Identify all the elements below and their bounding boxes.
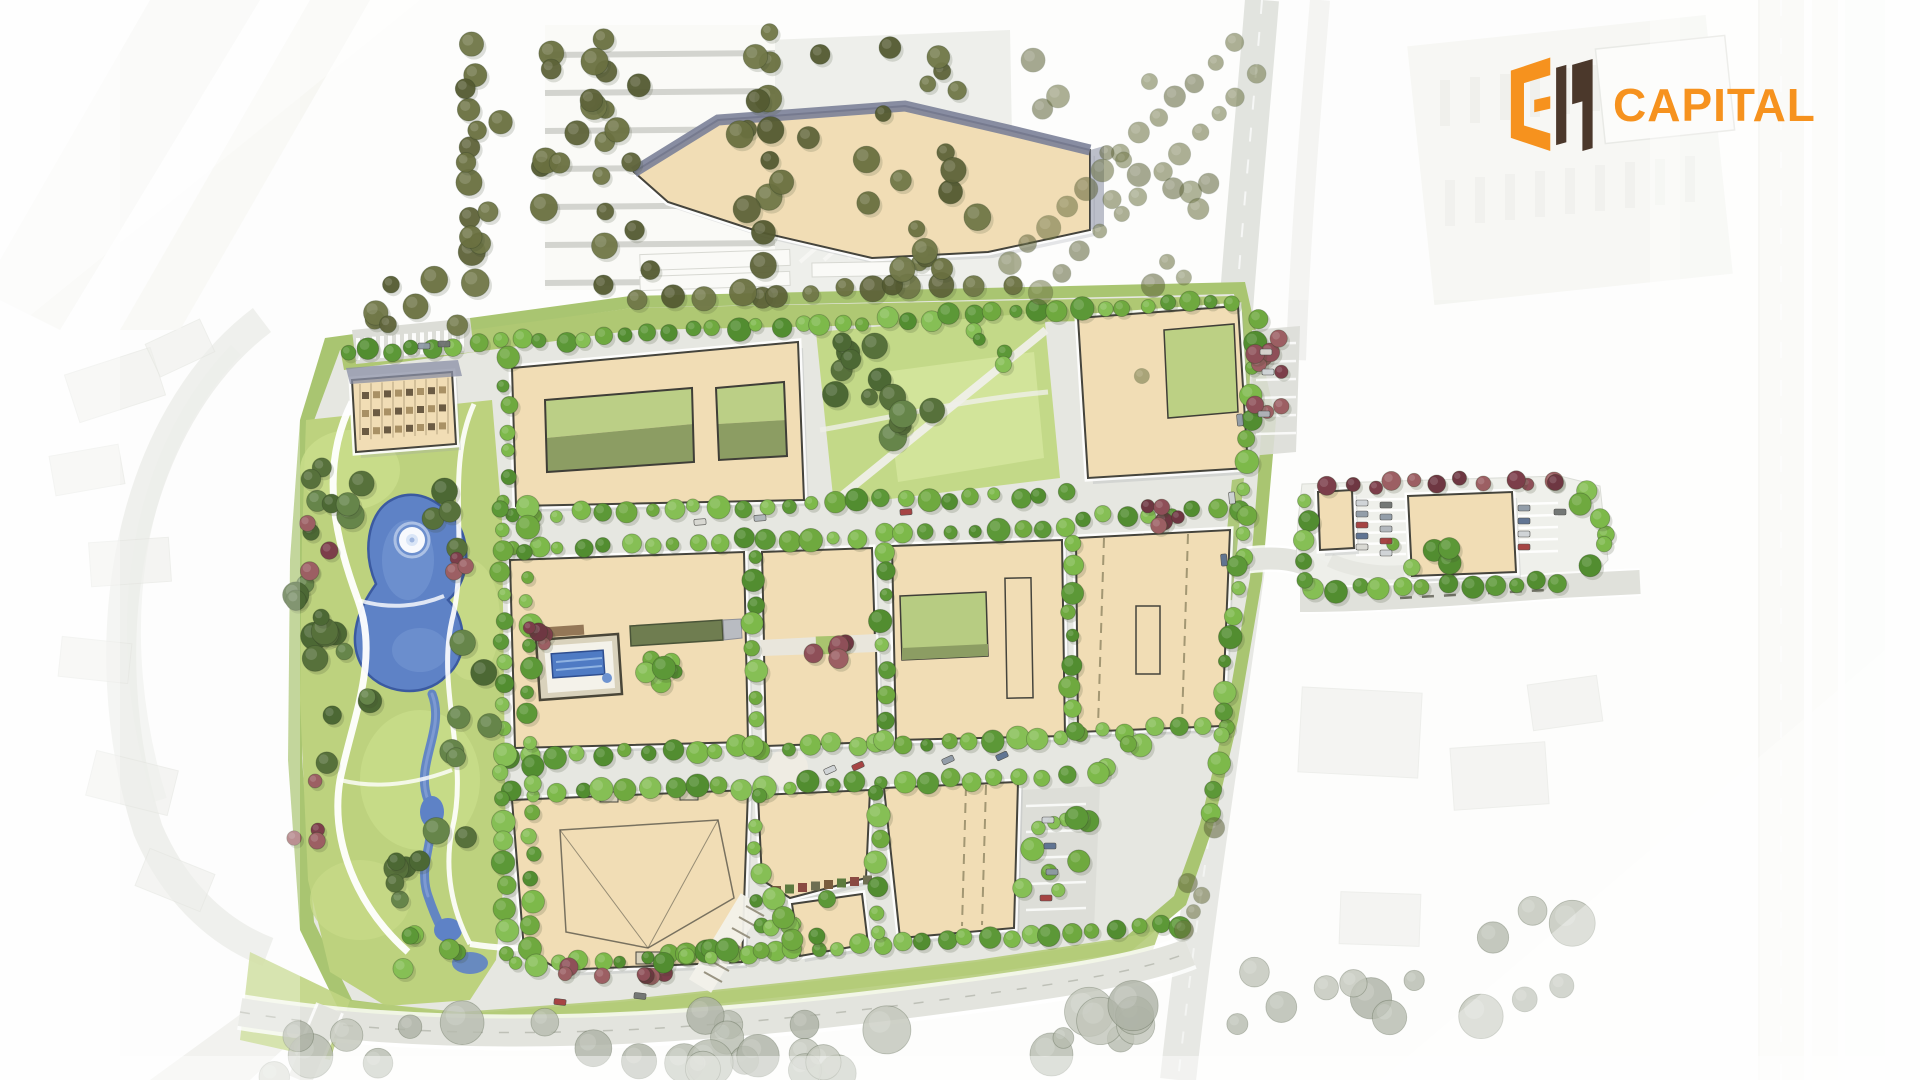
tree-highlight xyxy=(643,263,652,272)
tree-highlight xyxy=(395,961,404,970)
tree-highlight xyxy=(494,853,505,864)
tree-highlight xyxy=(878,525,886,533)
tree-highlight xyxy=(745,571,755,581)
tree-highlight xyxy=(339,495,350,506)
tree-highlight xyxy=(881,590,887,596)
tree-highlight xyxy=(309,493,319,503)
tree-highlight xyxy=(480,204,489,213)
tree-highlight xyxy=(962,735,970,743)
tree-highlight xyxy=(756,920,763,927)
tree-highlight xyxy=(1211,501,1220,510)
tree-highlight xyxy=(1143,75,1150,82)
tree-highlight xyxy=(1593,511,1602,520)
tree xyxy=(863,1006,911,1054)
fountain-jet xyxy=(410,538,415,543)
tree-highlight xyxy=(624,155,633,164)
tree-highlight xyxy=(528,956,538,966)
tree xyxy=(1162,178,1184,200)
tree xyxy=(1518,896,1547,925)
tree xyxy=(1168,143,1190,165)
parked-car xyxy=(1356,500,1368,506)
tree-highlight xyxy=(1094,162,1104,172)
tree-highlight xyxy=(323,544,331,552)
parked-car xyxy=(1380,526,1392,532)
tree-highlight xyxy=(893,259,904,270)
tree-highlight xyxy=(462,228,472,238)
tree-highlight xyxy=(1180,876,1189,885)
tree-highlight xyxy=(1248,398,1256,406)
tree-highlight xyxy=(1021,237,1029,245)
tree-highlight xyxy=(385,278,393,286)
tree-highlight xyxy=(1239,508,1248,517)
tree-highlight xyxy=(1464,578,1474,588)
tree-highlight xyxy=(499,921,509,931)
tree xyxy=(1226,88,1245,107)
tree-highlight xyxy=(1229,1016,1238,1025)
tree-highlight xyxy=(712,779,720,787)
tree-highlight xyxy=(315,611,322,618)
tree-highlight xyxy=(765,889,775,899)
tree-highlight xyxy=(453,633,465,645)
tree-highlight xyxy=(713,536,721,544)
tree xyxy=(1128,122,1149,143)
tree-highlight xyxy=(706,953,712,959)
tree-highlight xyxy=(920,775,930,785)
tree-highlight xyxy=(688,323,695,330)
tree-highlight xyxy=(910,222,917,229)
tree xyxy=(1019,235,1037,253)
tree-highlight xyxy=(1511,580,1518,587)
tree-highlight xyxy=(1068,724,1076,732)
garage-roof-units xyxy=(362,410,369,417)
tree-highlight xyxy=(968,325,975,332)
tree-highlight xyxy=(915,935,923,943)
tree-highlight xyxy=(883,387,895,399)
tree-highlight xyxy=(1201,175,1210,184)
monogram-i xyxy=(1556,65,1566,145)
tree-highlight xyxy=(1014,491,1023,500)
tree-highlight xyxy=(877,639,883,645)
tree-highlight xyxy=(749,92,760,103)
tree-highlight xyxy=(334,1022,349,1037)
tree-highlight xyxy=(880,309,890,319)
tree-highlight xyxy=(870,879,879,888)
tree-highlight xyxy=(997,358,1004,365)
tree xyxy=(1141,73,1157,89)
tree xyxy=(440,1001,484,1045)
tree-highlight xyxy=(574,503,582,511)
tree-highlight xyxy=(495,813,506,824)
tree-highlight xyxy=(497,524,503,530)
tree-highlight xyxy=(930,48,940,58)
tree-highlight xyxy=(481,716,492,727)
tree-highlight xyxy=(742,948,750,956)
parking-stall-ticks xyxy=(1518,551,1558,552)
tree-highlight xyxy=(470,123,478,131)
tree xyxy=(1193,887,1210,904)
tree-highlight xyxy=(571,747,578,754)
tree-highlight xyxy=(730,320,741,331)
tree-highlight xyxy=(1348,479,1354,485)
tree-highlight xyxy=(1509,473,1517,481)
tree-highlight xyxy=(1194,126,1202,134)
tree-highlight xyxy=(1024,927,1032,935)
tree-highlight xyxy=(595,236,607,248)
tree-highlight xyxy=(640,326,648,334)
tree-highlight xyxy=(784,501,790,507)
tree xyxy=(1036,215,1061,240)
tree-highlight xyxy=(498,614,506,622)
brand-logo: CAPITAL xyxy=(1505,50,1816,160)
tree-highlight xyxy=(459,155,468,164)
tree-highlight xyxy=(519,498,529,508)
tree-highlight xyxy=(1105,192,1113,200)
tree-highlight xyxy=(343,347,350,354)
parking-stall-ticks xyxy=(1256,433,1296,434)
parked-car xyxy=(754,515,766,522)
tree-highlight xyxy=(552,512,557,517)
tree-highlight xyxy=(691,1001,708,1018)
tree-highlight xyxy=(939,146,947,154)
tree-highlight xyxy=(765,922,772,929)
tree-highlight xyxy=(922,740,928,746)
tree-highlight xyxy=(367,303,378,314)
tree-highlight xyxy=(503,445,509,451)
tree-highlight xyxy=(1072,243,1081,252)
tree-highlight xyxy=(695,289,706,300)
tree-highlight xyxy=(663,326,671,334)
tree-highlight xyxy=(1275,400,1282,407)
tree-highlight xyxy=(404,929,412,937)
tree-highlight xyxy=(989,489,995,495)
tree-highlight xyxy=(525,873,532,880)
tree-highlight xyxy=(496,793,503,800)
tree-highlight xyxy=(446,1006,466,1026)
parked-car xyxy=(1258,411,1270,417)
tree-highlight xyxy=(1227,609,1235,617)
tree-highlight xyxy=(462,35,473,46)
tree-highlight xyxy=(1299,574,1306,581)
tree-highlight xyxy=(832,944,838,950)
tree-highlight xyxy=(1060,485,1068,493)
tree-highlight xyxy=(1035,1038,1054,1057)
tree-highlight xyxy=(643,747,650,754)
tree-highlight xyxy=(882,39,892,49)
tree-highlight xyxy=(1090,765,1100,775)
tree-highlight xyxy=(982,929,992,939)
tree-highlight xyxy=(879,714,887,722)
parking-stall-ticks xyxy=(1256,379,1296,380)
tree-highlight xyxy=(1162,296,1169,303)
tree-highlight xyxy=(703,941,712,950)
tree-highlight xyxy=(1276,367,1282,373)
tree-highlight xyxy=(1598,538,1605,545)
tree-highlight xyxy=(577,541,585,549)
parking-bay-lines xyxy=(545,91,775,93)
tree-highlight xyxy=(1188,906,1194,912)
tree-highlight xyxy=(1582,557,1592,567)
parked-car xyxy=(1554,509,1566,515)
tree-highlight xyxy=(1059,198,1069,208)
tree-highlight xyxy=(1101,147,1108,154)
tree-highlight xyxy=(460,560,467,567)
tree-highlight xyxy=(449,540,458,549)
tree-highlight xyxy=(544,61,553,70)
tree-highlight xyxy=(1167,88,1177,98)
tree-highlight xyxy=(1270,995,1284,1009)
tree-highlight xyxy=(838,280,846,288)
tree-highlight xyxy=(1371,483,1377,489)
tree-highlight xyxy=(542,44,553,55)
tree-highlight xyxy=(1033,823,1039,829)
tree-highlight xyxy=(1195,889,1202,896)
tree-highlight xyxy=(619,745,625,751)
tree-highlight xyxy=(616,781,626,791)
tree-highlight xyxy=(1242,387,1252,397)
tree-highlight xyxy=(1032,490,1039,497)
garage-roof-units xyxy=(373,391,380,398)
tree-highlight xyxy=(1118,726,1126,734)
tree-highlight xyxy=(877,545,886,554)
tree-highlight xyxy=(361,690,368,697)
tree-highlight xyxy=(1118,154,1125,161)
tree-highlight xyxy=(879,564,887,572)
tree-highlight xyxy=(619,504,629,514)
tree-highlight xyxy=(1148,719,1156,727)
parked-car xyxy=(1260,349,1272,355)
tree xyxy=(1477,922,1508,953)
tree-highlight xyxy=(1152,111,1160,119)
tree-highlight xyxy=(857,149,869,161)
tree-highlight xyxy=(425,510,435,520)
tree-highlight xyxy=(494,503,501,510)
tree-highlight xyxy=(1190,201,1200,211)
tree-highlight xyxy=(502,427,509,434)
tree-highlight xyxy=(1377,1004,1393,1020)
tree-highlight xyxy=(1171,145,1181,155)
tree xyxy=(1091,159,1114,182)
tree-highlight xyxy=(500,878,508,886)
tree-highlight xyxy=(503,398,511,406)
tree-highlight xyxy=(835,335,844,344)
tree-highlight xyxy=(550,785,559,794)
tree-highlight xyxy=(750,599,758,607)
garage-roof-units xyxy=(439,422,446,429)
tree-highlight xyxy=(828,533,834,539)
parking-bay-lines xyxy=(545,53,775,55)
tree-highlight xyxy=(515,331,524,340)
tree-highlight xyxy=(615,957,620,962)
tree xyxy=(1028,280,1053,305)
tree-highlight xyxy=(525,738,531,744)
tree-highlight xyxy=(1206,297,1212,303)
tree-highlight xyxy=(536,151,548,163)
tree-highlight xyxy=(1405,561,1413,569)
green-roof xyxy=(716,382,786,424)
tree-highlight xyxy=(689,744,699,754)
tree-highlight xyxy=(846,773,856,783)
tree-highlight xyxy=(1061,678,1071,688)
tree-highlight xyxy=(967,207,979,219)
parked-car xyxy=(1380,550,1392,556)
parked-car xyxy=(1262,369,1274,375)
context-building xyxy=(1339,892,1421,947)
tree-highlight xyxy=(860,194,870,204)
tree-highlight xyxy=(760,120,772,132)
tree-highlight xyxy=(1068,630,1074,636)
tree-highlight xyxy=(1053,885,1059,891)
tree-highlight xyxy=(596,277,605,286)
tree-highlight xyxy=(526,777,534,785)
tree-highlight xyxy=(1228,90,1236,98)
tree-highlight xyxy=(1177,922,1186,931)
tree-highlight xyxy=(597,134,606,143)
tree-highlight xyxy=(1001,254,1011,264)
tree-highlight xyxy=(1549,476,1556,483)
tree xyxy=(1266,992,1297,1023)
tree-highlight xyxy=(656,955,665,964)
tree-highlight xyxy=(1529,573,1537,581)
tree xyxy=(998,252,1021,275)
tree-highlight xyxy=(1216,684,1226,694)
tree-highlight xyxy=(1441,576,1450,585)
tree-highlight xyxy=(1238,528,1244,534)
tree-highlight xyxy=(495,636,502,643)
tree-highlight xyxy=(1478,478,1485,485)
tree-highlight xyxy=(940,305,950,315)
tree-highlight xyxy=(1143,301,1149,307)
tree-highlight xyxy=(580,1034,597,1051)
parked-car xyxy=(1518,505,1530,511)
tree-highlight xyxy=(775,909,785,919)
tree-highlight xyxy=(668,539,674,545)
tree xyxy=(1116,152,1132,168)
tree-highlight xyxy=(733,782,743,792)
tree-highlight xyxy=(689,776,699,786)
tree-highlight xyxy=(449,317,458,326)
garage-roof-units xyxy=(417,424,424,431)
tree-highlight xyxy=(664,287,675,298)
tree-highlight xyxy=(523,918,532,927)
tree-highlight xyxy=(1015,880,1024,889)
tree-highlight xyxy=(645,653,653,661)
tree-highlight xyxy=(768,288,778,298)
tree-highlight xyxy=(893,172,903,182)
tree-highlight xyxy=(750,821,756,827)
tree xyxy=(1174,920,1193,939)
tree-highlight xyxy=(865,336,877,348)
context-building xyxy=(1450,742,1549,810)
tree-highlight xyxy=(746,47,757,58)
tree-highlight xyxy=(1207,783,1215,791)
tree-highlight xyxy=(896,934,904,942)
tree-highlight xyxy=(496,745,507,756)
parked-car xyxy=(1044,843,1056,849)
tree-highlight xyxy=(922,78,929,85)
tree-highlight xyxy=(442,941,451,950)
tree-highlight xyxy=(1221,628,1232,639)
tree-highlight xyxy=(524,893,534,903)
garage-roof-units xyxy=(384,426,391,433)
tree-highlight xyxy=(1006,933,1014,941)
context-building xyxy=(1298,687,1422,778)
parked-car xyxy=(1042,817,1054,823)
tree-highlight xyxy=(1039,218,1050,229)
tree-highlight xyxy=(1064,657,1073,666)
tree-highlight xyxy=(1430,477,1438,485)
block-southeast xyxy=(884,782,1018,938)
tree-highlight xyxy=(1251,312,1260,321)
tree-highlight xyxy=(494,766,501,773)
tree-highlight xyxy=(1131,190,1139,198)
tree-highlight xyxy=(578,785,585,792)
tree-highlight xyxy=(811,317,820,326)
tree-highlight xyxy=(352,474,363,485)
tree xyxy=(1227,1014,1248,1035)
tree-highlight xyxy=(583,91,593,101)
tree xyxy=(1404,970,1424,990)
tree-highlight xyxy=(748,662,758,672)
tree-highlight xyxy=(944,160,956,172)
garage-roof-units xyxy=(428,405,435,412)
tree-highlight xyxy=(524,757,534,767)
tree-highlight xyxy=(806,646,815,655)
tree-highlight xyxy=(1426,542,1436,552)
tree-highlight xyxy=(1061,768,1069,776)
tree-highlight xyxy=(625,536,634,545)
tree-highlight xyxy=(1062,606,1069,613)
tree-highlight xyxy=(1161,256,1168,263)
garage-roof-units xyxy=(395,408,402,415)
tree-highlight xyxy=(957,930,964,937)
tree-highlight xyxy=(709,746,716,753)
tree-highlight xyxy=(1384,473,1393,482)
tree-highlight xyxy=(412,853,421,862)
tree-highlight xyxy=(869,1011,891,1033)
tree-highlight xyxy=(874,491,882,499)
tree-highlight xyxy=(806,498,812,504)
tree-highlight xyxy=(1066,557,1075,566)
tree-highlight xyxy=(1006,278,1014,286)
tree-highlight xyxy=(647,540,654,547)
tree-highlight xyxy=(630,76,640,86)
green-roof-dark xyxy=(718,420,787,460)
tree-highlight xyxy=(597,329,605,337)
tree-highlight xyxy=(755,778,766,789)
tree-highlight xyxy=(460,101,470,111)
tree-highlight xyxy=(620,329,626,335)
tree-highlight xyxy=(1296,532,1305,541)
tree-highlight xyxy=(1156,164,1164,172)
tree-highlight xyxy=(596,505,604,513)
tree-highlight xyxy=(1572,495,1582,505)
tree-highlight xyxy=(733,282,745,294)
parked-car xyxy=(1046,869,1058,875)
garage-roof-units xyxy=(439,386,446,393)
tree-highlight xyxy=(901,315,909,323)
parking-stall-ticks xyxy=(1518,527,1558,528)
tree-highlight xyxy=(1228,35,1236,43)
storefront-strip xyxy=(798,883,807,892)
garage-roof-units xyxy=(428,423,435,430)
tree-highlight xyxy=(522,687,528,693)
tree-highlight xyxy=(757,531,766,540)
tree-highlight xyxy=(1116,208,1123,215)
tree xyxy=(1069,241,1089,261)
tree-highlight xyxy=(1320,478,1329,487)
tree-highlight xyxy=(1301,513,1310,522)
parked-car xyxy=(1220,554,1227,566)
